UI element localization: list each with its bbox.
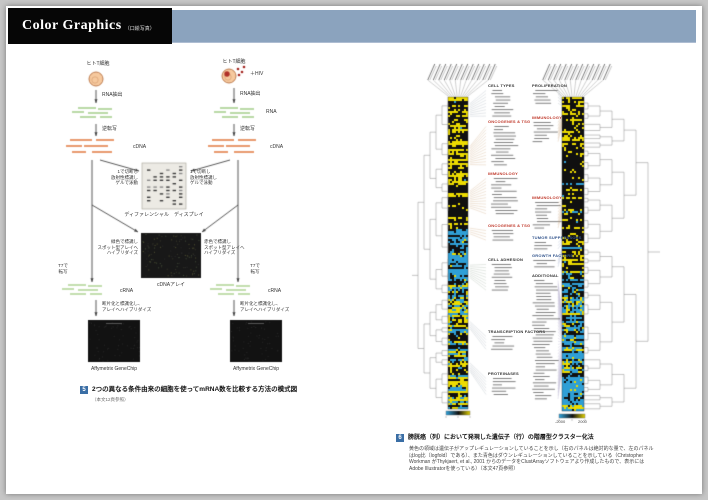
crna-label-left: cRNA: [120, 288, 133, 294]
cdna-array-caption: cDNAアレイ: [141, 282, 201, 288]
human-tcell-label-right: ヒトT細胞: [212, 59, 256, 65]
cdna-label-right: cDNA: [270, 144, 283, 150]
hiv-label: ＋HIV: [250, 71, 263, 77]
page-title: Color Graphics: [22, 18, 122, 34]
scale-max-label: 2000: [578, 419, 587, 424]
category-header: IMMUNOLOGY: [532, 115, 562, 120]
reverse-transcription-label-left: 逆転写: [102, 126, 117, 132]
figure5-title: 2つの異なる条件由来の細胞を使ってmRNA数を比較する方法の模式図: [92, 386, 297, 394]
t7-transcription-label-right: T7で 転写: [244, 263, 266, 274]
category-header: PROTEINASES: [488, 371, 519, 376]
scale-min-label: -2000: [555, 419, 565, 424]
category-header: ADDITIONAL: [532, 273, 559, 278]
t7-transcription-label-left: T7で 転写: [52, 263, 74, 274]
category-header: ONCOGENES & TSG: [488, 223, 530, 228]
human-tcell-label-left: ヒトT細胞: [76, 61, 120, 67]
fragment-note-right: 断片化と標識化し、 アレイへハイブリダイズ: [240, 301, 312, 312]
chapter-header-bar: Color Graphics （口絵写真）: [8, 8, 172, 44]
category-header: IMMUNOLOGY: [488, 171, 518, 176]
green-label-note: 緑色で標識し スポット型アレイへ ハイブリダイズ: [92, 239, 138, 256]
cut-note-left: 1で切断し 放射性標識し ゲルで泳動: [96, 169, 138, 186]
rna-extraction-label-right: RNA抽出: [240, 91, 261, 97]
figure5-caption: 5 2つの異なる条件由来の細胞を使ってmRNA数を比較する方法の模式図: [80, 386, 380, 394]
category-header: TUMOR SUPPRESSORS: [532, 235, 582, 240]
rna-label: RNA: [266, 109, 277, 115]
page-subtitle: （口絵写真）: [125, 25, 155, 32]
figure6-caption-line: Adobe Illustratorを使っている）（本文47頁参照）: [409, 466, 691, 473]
figure5-number-badge: 5: [80, 386, 88, 394]
book-page-spread: Color Graphics （口絵写真） ヒトT細胞 ヒトT細胞 ＋HIV R…: [0, 0, 708, 500]
category-header: ONCOGENES & TSG: [488, 119, 530, 124]
rna-extraction-label-left: RNA抽出: [102, 92, 123, 98]
reverse-transcription-label-right: 逆転写: [240, 126, 255, 132]
red-label-note: 赤色で標識し スポット型アレイへ ハイブリダイズ: [204, 239, 252, 256]
category-header: TRANSCRIPTION FACTORS: [488, 329, 545, 334]
category-header: CELL ADHESION: [488, 257, 523, 262]
figure5-page-ref: （本文12頁参照）: [92, 397, 129, 403]
crna-label-right: cRNA: [268, 288, 281, 294]
cdna-label-left: cDNA: [133, 144, 146, 150]
genechip-label-right: Affymetrix GeneChip: [216, 366, 296, 372]
category-header: GROWTH FACTORS: [532, 253, 573, 258]
category-header: IMMUNOLOGY: [532, 195, 562, 200]
cut-note-right: 1で切断し 放射性標識し ゲルで泳動: [190, 169, 234, 186]
category-header: PROLIFERATION: [532, 83, 567, 88]
figure6-caption-line: 黄色の領域は遺伝子がアップレギュレーションしていることを示し（右のパネルは絶対的…: [409, 446, 691, 453]
genechip-label-left: Affymetrix GeneChip: [74, 366, 154, 372]
figure6-title: 膀胱癌（列）において発現した遺伝子（行）の階層型クラスター化法: [408, 434, 594, 442]
figure6-caption: 6 膀胱癌（列）において発現した遺伝子（行）の階層型クラスター化法: [396, 434, 696, 442]
differential-display-caption: ディファレンシャル ディスプレイ: [116, 212, 212, 218]
figure6-number-badge: 6: [396, 434, 404, 442]
category-header: CELL TYPES: [488, 83, 515, 88]
fragment-note-left: 断片化と標識化し、 アレイへハイブリダイズ: [102, 301, 174, 312]
figure6-caption-body: 黄色の領域は遺伝子がアップレギュレーションしていることを示し（右のパネルは絶対的…: [409, 446, 691, 472]
